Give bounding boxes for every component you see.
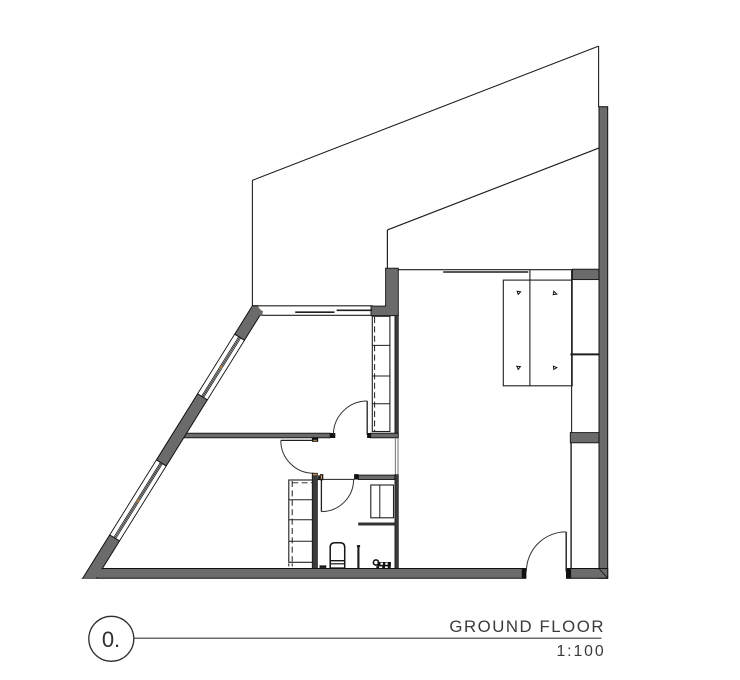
svg-text:1:100: 1:100 [556,643,605,660]
svg-text:0.: 0. [102,627,120,652]
svg-text:GROUND FLOOR: GROUND FLOOR [449,617,605,636]
